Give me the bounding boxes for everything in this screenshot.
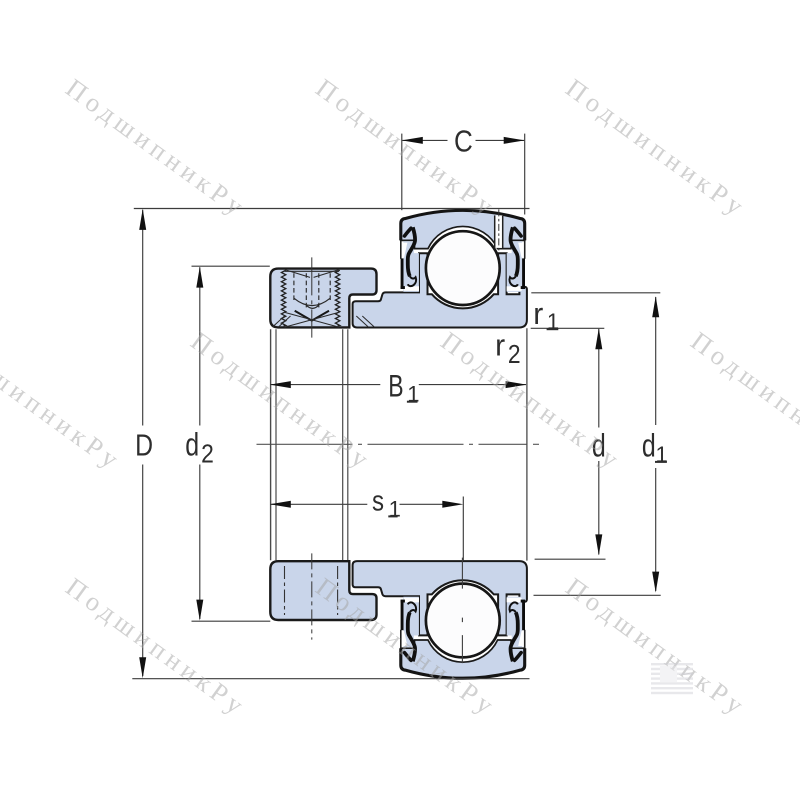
svg-text:B: B [388, 368, 403, 403]
svg-text:d: d [642, 428, 656, 464]
svg-text:d: d [185, 428, 199, 464]
svg-text:C: C [454, 125, 473, 160]
svg-text:1: 1 [407, 382, 419, 407]
svg-text:2: 2 [508, 341, 521, 370]
svg-text:2: 2 [201, 440, 214, 469]
svg-text:r: r [533, 297, 543, 332]
svg-text:1: 1 [547, 309, 559, 334]
svg-text:D: D [135, 428, 153, 462]
svg-text:s: s [372, 484, 384, 517]
svg-text:1: 1 [389, 496, 401, 521]
svg-text:1: 1 [656, 442, 668, 467]
